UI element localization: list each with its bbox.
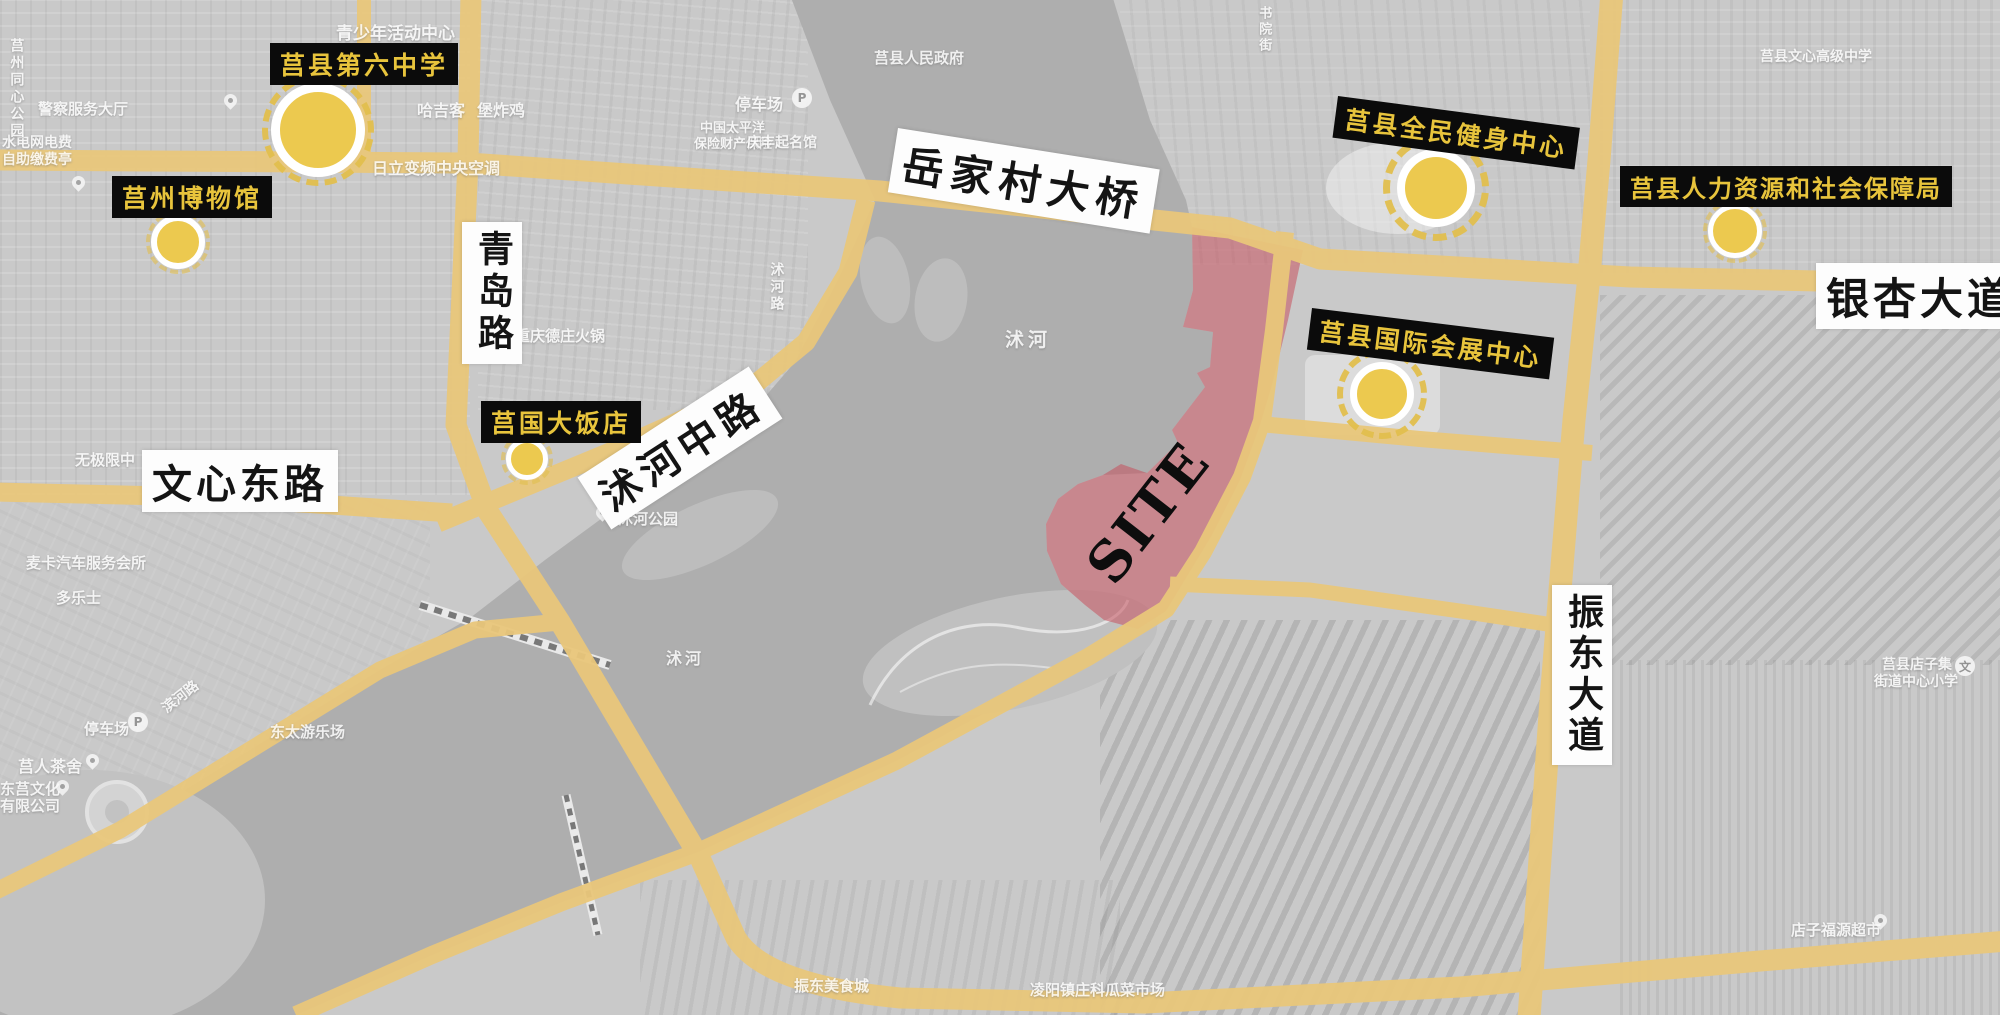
landmark-marker-school6	[271, 83, 365, 177]
base-map-label: 莒县人民政府	[874, 50, 964, 67]
base-map-label: 多乐士	[56, 590, 101, 607]
landmark-label-hr-bureau: 莒县人力资源和社会保障局	[1620, 166, 1952, 207]
landmark-label-museum: 莒州博物馆	[112, 176, 272, 218]
base-map-label: 日立变频中央空调	[372, 160, 500, 178]
base-map-label: 重庆德庄火锅	[515, 328, 605, 345]
base-map-label: 警察服务大厅	[38, 101, 128, 118]
base-map-label: 莒县文心高级中学	[1760, 50, 1872, 65]
base-map-label: 哈吉客	[417, 102, 465, 120]
base-map-label: 东太游乐场	[270, 724, 345, 741]
base-map-label: 有限公司	[0, 798, 60, 815]
base-map-label: 振东美食城	[794, 978, 869, 995]
school-icon: 文	[1955, 656, 1975, 676]
landmark-marker-fitness-center	[1397, 149, 1475, 227]
base-map-label: 莒县店子集	[1882, 658, 1952, 673]
landmark-marker-hr-bureau	[1708, 204, 1762, 258]
base-map-label: 自助缴费亭	[2, 153, 72, 168]
base-map-label: 青少年活动中心	[336, 25, 455, 44]
base-map-label: 无极限中	[75, 452, 135, 469]
base-map-label: 莒人茶舍	[18, 758, 82, 776]
base-map-label: 街道中心小学	[1874, 675, 1958, 690]
base-map-label: 停车场	[84, 721, 129, 738]
base-map-label: 书院街	[1256, 6, 1270, 54]
landmark-label-school6: 莒县第六中学	[270, 43, 458, 85]
base-map-label: 东莒文化	[0, 781, 60, 798]
base-map-label: 麦卡汽车服务会所	[26, 555, 146, 572]
base-map-label: 庆丰起名馆	[747, 136, 817, 151]
base-map-label: 店子福源超市	[1791, 922, 1881, 939]
site-analysis-map: 青少年活动中心 莒县人民政府 停车场 哈吉客 堡炸鸡 水电网电费 自助缴费亭 中…	[0, 0, 2000, 1015]
road-label-wenxin-east-road: 文心东路	[142, 450, 338, 512]
road-label-qingdao-road: 青岛路	[462, 222, 522, 364]
road-east-west-minor	[1170, 584, 1560, 626]
base-map-label: 沭河路	[768, 262, 783, 313]
landmark-marker-expo-center	[1350, 362, 1414, 426]
river-name-label: 沭河	[1005, 330, 1051, 351]
landmark-label-hotel: 莒国大饭店	[481, 401, 641, 443]
river-name-label: 沭河	[666, 650, 704, 668]
base-map-label: 莒州同心公园	[8, 38, 23, 140]
road-label-yinxing-avenue: 银杏大道	[1816, 263, 2000, 329]
landmark-marker-hotel	[506, 438, 548, 480]
base-map-label: 凌阳镇庄科瓜菜市场	[1030, 982, 1165, 999]
landmark-marker-museum	[151, 215, 205, 269]
parking-icon: P	[792, 88, 812, 108]
parking-icon: P	[128, 712, 148, 732]
base-map-label: 堡炸鸡	[477, 102, 525, 120]
base-map-label: 停车场	[735, 96, 783, 114]
road-label-zhendong-avenue: 振东大道	[1552, 585, 1612, 765]
